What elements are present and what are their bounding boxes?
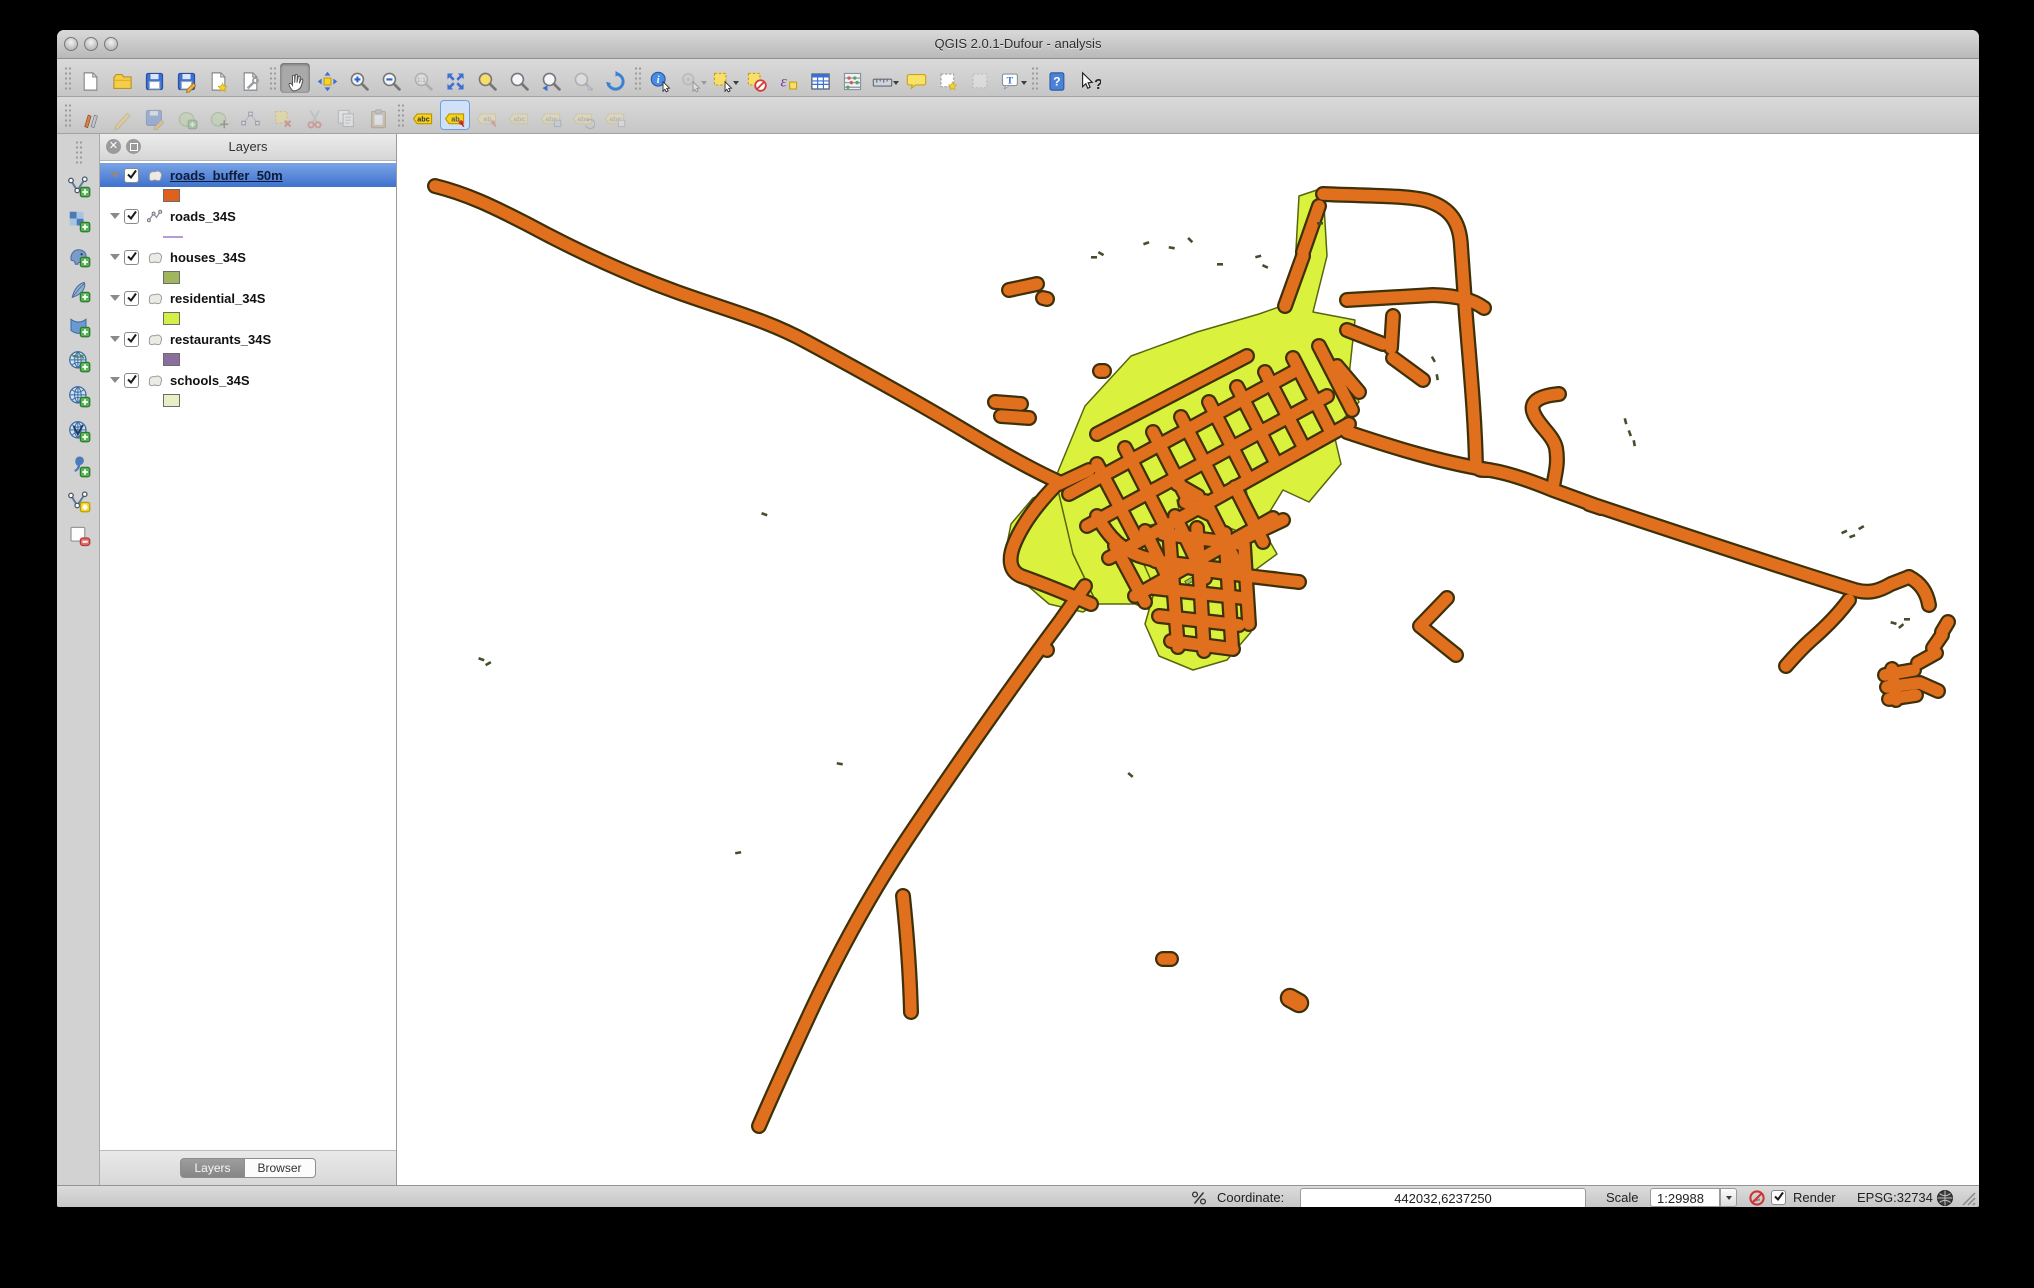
main-toolbar: 1:1iεT?? [57,59,1979,97]
label-pin2-icon: ab [472,107,502,130]
toolbar-drag-handle[interactable] [269,66,276,90]
layer-labeling-button[interactable]: abc [408,100,438,130]
layer-name: residential_34S [170,291,265,306]
bookmark-show-icon [965,70,995,93]
expand-triangle-icon[interactable] [110,336,120,347]
zoom-actual-size-button[interactable]: 1:1 [408,63,438,93]
remove-layer-button[interactable] [61,515,95,548]
deselect-icon [741,70,771,93]
layer-symbol-swatch[interactable] [163,353,180,366]
annotation-icon: T [997,70,1023,93]
svg-text:?: ? [1094,76,1101,92]
save-as-icon [171,70,201,93]
layer-name: schools_34S [170,373,250,388]
layer-symbol-swatch[interactable] [163,236,183,238]
current-edits-button[interactable] [75,100,105,130]
layer-visibility-checkbox[interactable] [124,373,139,388]
delete-selected-icon [267,107,297,130]
hand-icon [280,70,310,93]
polygon-layer-icon [146,249,165,266]
select-by-expression-button[interactable]: ε [773,63,803,93]
paste-icon [363,107,393,130]
map-tips-button[interactable] [901,63,931,93]
help-button[interactable]: ? [1042,63,1072,93]
bookmark-new-icon [933,70,963,93]
zoom-out-icon [376,70,406,93]
copy-icon [331,107,361,130]
dropdown-arrow-icon[interactable] [733,81,739,88]
deselect-features-button[interactable] [741,63,771,93]
status-bar: Coordinate: 442032,6237250 Scale 1:29988… [57,1185,1979,1207]
whats-this-button[interactable]: ? [1074,63,1104,93]
pan-to-selection-button[interactable] [312,63,342,93]
current-edits-icon [75,107,105,130]
scale-label: Scale [1606,1190,1639,1205]
svg-text:abc: abc [513,115,525,124]
move-label-button[interactable]: abc [536,100,566,130]
zoom-in-button[interactable] [344,63,374,93]
layer-symbology-row [100,269,396,286]
move-feature-button[interactable] [203,100,233,130]
svg-text:ε: ε [780,73,787,90]
svg-text:1:1: 1:1 [416,76,425,83]
change-label-button[interactable]: abc [600,100,630,130]
open-project-button[interactable] [107,63,137,93]
layer-symbology-row [100,187,396,204]
layer-name: roads_34S [170,209,236,224]
remove-layer-icon [61,523,95,548]
new-print-composer-button[interactable] [203,63,233,93]
add-spatialite-icon [61,278,95,303]
cut-icon [299,107,329,130]
zoom-in-icon [344,70,374,93]
save-layer-edits-button[interactable] [139,100,169,130]
copy-features-button[interactable] [331,100,361,130]
add-mssql-icon [61,313,95,338]
zoom-to-layer-button[interactable] [504,63,534,93]
add-wfs-layer-button[interactable] [61,410,95,443]
layer-symbology-row [100,310,396,327]
toolbar-drag-handle[interactable] [634,66,641,90]
layer-symbology-row [100,351,396,368]
dropdown-arrow-icon[interactable] [1021,81,1027,88]
layer-visibility-checkbox[interactable] [124,291,139,306]
crs-status-icon[interactable] [1935,1188,1955,1207]
select-icon [709,70,735,93]
coordinate-label: Coordinate: [1217,1190,1284,1205]
edit-label-toolbar: abcabababcabcabcabc [57,97,1979,134]
zoom-next-button[interactable] [568,63,598,93]
zoom-full-icon [440,70,470,93]
label-move-icon: abc [536,107,566,130]
add-feature-button[interactable] [171,100,201,130]
window-title: QGIS 2.0.1-Dufour - analysis [57,30,1979,58]
add-wcs-icon [61,383,95,408]
add-postgis-icon [61,243,95,268]
dropdown-arrow-icon[interactable] [701,81,707,88]
zoom-out-button[interactable] [376,63,406,93]
panel-tabs: LayersBrowser [100,1150,396,1185]
calculator-icon [837,70,867,93]
new-shapefile-layer-button[interactable] [61,480,95,513]
new-shapefile-icon [61,488,95,513]
zoom-next-icon [568,70,598,93]
save-edits-icon [139,107,169,130]
add-wcs-layer-button[interactable] [61,375,95,408]
file-new-icon [75,70,105,93]
scale-dropdown-button[interactable] [1720,1188,1737,1207]
layer-item-roads_34S[interactable]: roads_34S [100,204,396,228]
panel-tab-browser[interactable]: Browser [245,1158,316,1178]
highlight-pinned-labels-button[interactable]: ab [440,100,470,130]
expand-triangle-icon[interactable] [110,254,120,265]
new-project-button[interactable] [75,63,105,93]
identify-features-button[interactable]: i [645,63,675,93]
zoom-last-icon [536,70,566,93]
expand-triangle-icon[interactable] [110,295,120,306]
node-tool-icon [235,107,265,130]
layer-symbology-row [100,228,396,245]
label-pin-icon: ab [440,107,470,130]
label-rotate-icon: abc [568,107,598,130]
composer-manager-icon [235,70,265,93]
folder-open-icon [107,70,137,93]
desktop-background: QGIS 2.0.1-Dufour - analysis 1:1iεT?? ab… [0,0,2034,1288]
label-abc-icon: abc [408,107,438,130]
composer-manager-button[interactable] [235,63,265,93]
expand-triangle-icon[interactable] [110,172,120,183]
polygon-layer-icon [146,331,165,348]
delete-selected-button[interactable] [267,100,297,130]
map-tips-icon [901,70,931,93]
dropdown-arrow-icon[interactable] [893,81,899,88]
svg-text:abc: abc [577,115,589,124]
polygon-layer-icon [146,372,165,389]
zoom-full-extent-button[interactable] [440,63,470,93]
label-props-icon: abc [600,107,630,130]
zoom-last-button[interactable] [536,63,566,93]
save-project-as-button[interactable] [171,63,201,93]
add-postgis-layer-button[interactable] [61,235,95,268]
text-annotation-button[interactable]: T [997,63,1027,93]
add-delimited-text-layer-button[interactable] [61,445,95,478]
title-bar[interactable]: QGIS 2.0.1-Dufour - analysis [57,30,1979,59]
measure-button[interactable] [869,63,899,93]
polygon-layer-icon [146,167,165,184]
layer-symbol-swatch[interactable] [163,271,180,284]
add-vector-layer-button[interactable] [61,165,95,198]
layer-visibility-checkbox[interactable] [124,209,139,224]
crs-status-text: EPSG:32734 [1857,1190,1933,1205]
layer-item-schools_34S[interactable]: schools_34S [100,368,396,392]
add-spatialite-layer-button[interactable] [61,270,95,303]
svg-text:abc: abc [417,115,429,124]
add-feature-icon [171,107,201,130]
stop-render-icon[interactable] [1747,1188,1767,1207]
toggle-editing-button[interactable] [107,100,137,130]
select-features-button[interactable] [709,63,739,93]
expand-triangle-icon[interactable] [110,213,120,224]
refresh-icon [600,70,630,93]
help-icon: ? [1042,70,1072,93]
expression-icon: ε [773,70,803,93]
layer-name: houses_34S [170,250,246,265]
panel-tab-layers[interactable]: Layers [180,1158,244,1178]
svg-text:?: ? [1053,74,1060,88]
zoom-layer-icon [504,70,534,93]
layers-panel-header: ✕ Layers [100,134,396,161]
label-plain-icon: abc [504,107,534,130]
zoom-selection-icon [472,70,502,93]
qgis-window: QGIS 2.0.1-Dufour - analysis 1:1iεT?? ab… [57,30,1979,1207]
layer-item-roads_buffer_50m[interactable]: roads_buffer_50m [100,163,396,187]
show-hide-labels-button[interactable]: abc [504,100,534,130]
layer-symbology-row [100,392,396,409]
layer-symbol-swatch[interactable] [163,312,180,325]
manage-layers-toolbar [57,134,100,1185]
pan-selection-icon [312,70,342,93]
toolbar-drag-handle[interactable] [64,103,71,127]
attribute-table-icon [805,70,835,93]
scale-combo[interactable]: 1:29988 [1650,1188,1720,1207]
toolbar-drag-handle[interactable] [1031,66,1038,90]
zoom-to-selection-button[interactable] [472,63,502,93]
add-raster-icon [61,208,95,233]
coordinate-capture-icon[interactable] [1189,1188,1209,1207]
feature-action-icon [677,70,703,93]
layers-list: roads_buffer_50mroads_34Shouses_34Sresid… [100,161,396,1150]
svg-text:T: T [1006,75,1013,86]
pan-map-button[interactable] [280,63,310,93]
add-mssql-layer-button[interactable] [61,305,95,338]
layer-visibility-checkbox[interactable] [124,250,139,265]
pin-unpin-labels-button[interactable]: ab [472,100,502,130]
toolbar-drag-handle[interactable] [397,103,404,127]
layer-item-restaurants_34S[interactable]: restaurants_34S [100,327,396,351]
add-csv-icon [61,453,95,478]
add-wms-icon [61,348,95,373]
show-bookmarks-button[interactable] [965,63,995,93]
whats-this-icon: ? [1074,70,1104,93]
layers-panel-title: Layers [100,134,396,160]
layer-name: roads_buffer_50m [170,168,283,183]
resize-grip[interactable] [1959,1189,1977,1207]
layer-item-residential_34S[interactable]: residential_34S [100,286,396,310]
measure-icon [869,70,895,93]
add-wms-layer-button[interactable] [61,340,95,373]
coordinate-input[interactable]: 442032,6237250 [1300,1188,1586,1207]
layer-name: restaurants_34S [170,332,271,347]
save-icon [139,70,169,93]
render-checkbox[interactable] [1771,1190,1786,1205]
save-project-button[interactable] [139,63,169,93]
layer-symbol-swatch[interactable] [163,189,180,202]
layer-item-houses_34S[interactable]: houses_34S [100,245,396,269]
layer-symbol-swatch[interactable] [163,394,180,407]
identify-icon: i [645,70,675,93]
layer-visibility-checkbox[interactable] [124,332,139,347]
expand-triangle-icon[interactable] [110,377,120,388]
cut-features-button[interactable] [299,100,329,130]
svg-text:i: i [656,74,659,85]
layers-panel: ✕ Layers roads_buffer_50mroads_34Shouses… [100,134,397,1185]
render-label: Render [1793,1190,1836,1205]
node-tool-button[interactable] [235,100,265,130]
paste-features-button[interactable] [363,100,393,130]
zoom-actual-icon: 1:1 [408,70,438,93]
field-calculator-button[interactable] [837,63,867,93]
line-layer-icon [146,208,165,225]
move-feature-icon [203,107,233,130]
new-bookmark-button[interactable] [933,63,963,93]
pencil-icon [107,107,137,130]
add-raster-layer-button[interactable] [61,200,95,233]
map-canvas[interactable] [397,134,1979,1185]
layer-visibility-checkbox[interactable] [124,168,139,183]
composer-new-icon [203,70,233,93]
refresh-map-button[interactable] [600,63,630,93]
polygon-layer-icon [146,290,165,307]
add-vector-icon [61,173,95,198]
add-wfs-icon [61,418,95,443]
toolbar-drag-handle[interactable] [64,66,71,90]
toolbar-drag-handle[interactable] [75,140,82,164]
rotate-label-button[interactable]: abc [568,100,598,130]
run-feature-action-button[interactable] [677,63,707,93]
open-attribute-table-button[interactable] [805,63,835,93]
